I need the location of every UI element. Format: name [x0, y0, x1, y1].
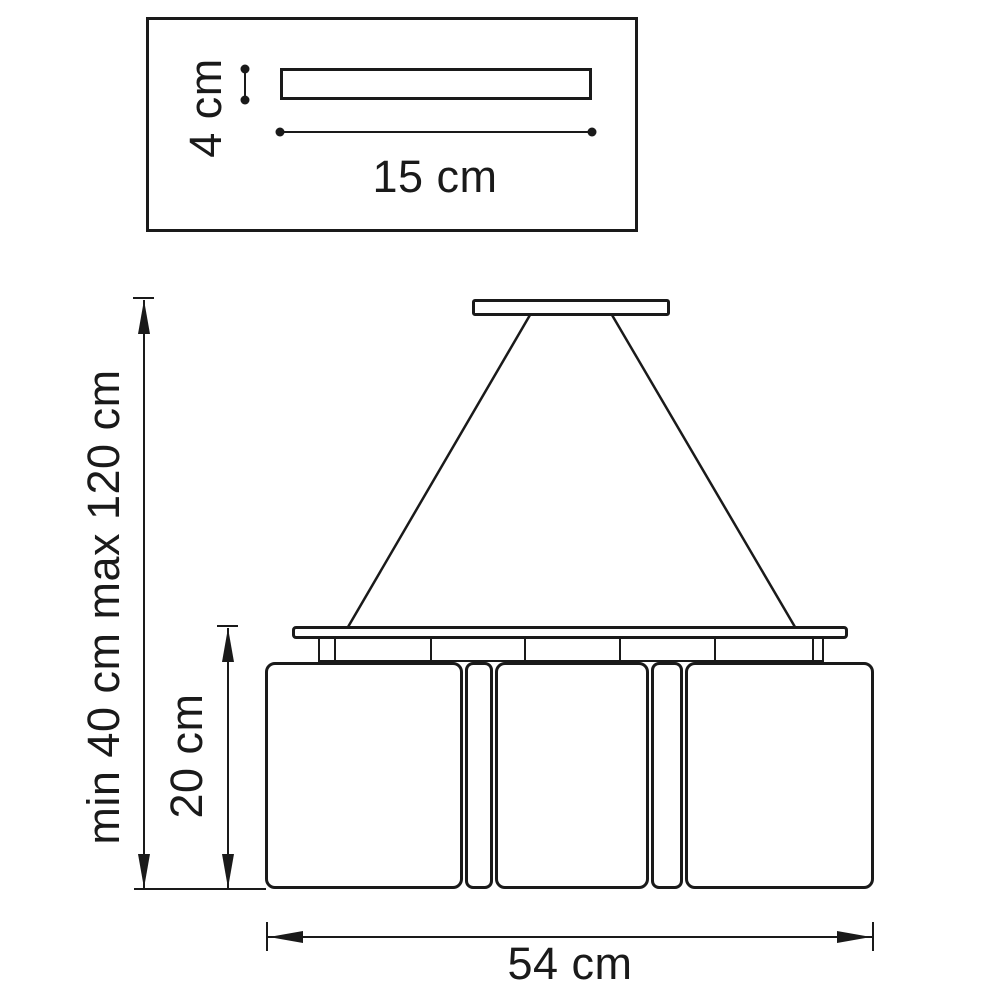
drop-dimension-line	[143, 300, 145, 888]
pendant-lamp-dimension-drawing: 4 cm 15 cm min 40 cm max 120 cm 20 cm	[0, 0, 1000, 1000]
suspension-range-label: min 40 cm max 120 cm	[78, 347, 128, 867]
canopy-height-label: 4 cm	[180, 0, 230, 258]
canopy-profile	[280, 68, 592, 100]
socket-divider	[714, 639, 716, 662]
shade-height-dimension-line	[227, 628, 229, 888]
drop-dimension-top-tick	[133, 297, 154, 299]
width-dimension-left-tick	[266, 922, 268, 951]
ceiling-plate	[472, 299, 670, 316]
drop-dimension-bottom-tick	[134, 888, 266, 890]
dimension-endpoint-dot	[588, 128, 597, 137]
canopy-width-label: 15 cm	[285, 151, 585, 201]
right-cable	[612, 315, 795, 627]
shade-height-top-tick	[217, 625, 238, 627]
left-cable	[348, 315, 530, 627]
shade-right	[685, 662, 874, 889]
shade-height-label: 20 cm	[161, 636, 211, 876]
socket-divider	[430, 639, 432, 662]
canopy-width-dimension-line	[280, 131, 592, 133]
dimension-endpoint-dot	[241, 65, 250, 74]
socket-divider	[812, 639, 814, 662]
arrow-down-icon	[138, 854, 150, 888]
dimension-endpoint-dot	[276, 128, 285, 137]
arrow-down-icon	[222, 854, 234, 888]
arrow-up-icon	[138, 300, 150, 334]
arrow-left-icon	[269, 931, 303, 943]
shade-spacer	[651, 662, 683, 889]
arrow-right-icon	[837, 931, 871, 943]
shade-left	[265, 662, 463, 889]
socket-rail	[318, 639, 824, 662]
dimension-endpoint-dot	[241, 96, 250, 105]
shade-spacer	[465, 662, 493, 889]
arrow-up-icon	[222, 628, 234, 662]
canopy-height-dimension-line	[244, 69, 246, 99]
socket-divider	[619, 639, 621, 662]
width-dimension-right-tick	[872, 922, 874, 951]
overall-width-label: 54 cm	[420, 938, 720, 988]
shade-center	[495, 662, 649, 889]
socket-divider	[334, 639, 336, 662]
suspension-bar	[292, 626, 848, 639]
socket-divider	[524, 639, 526, 662]
